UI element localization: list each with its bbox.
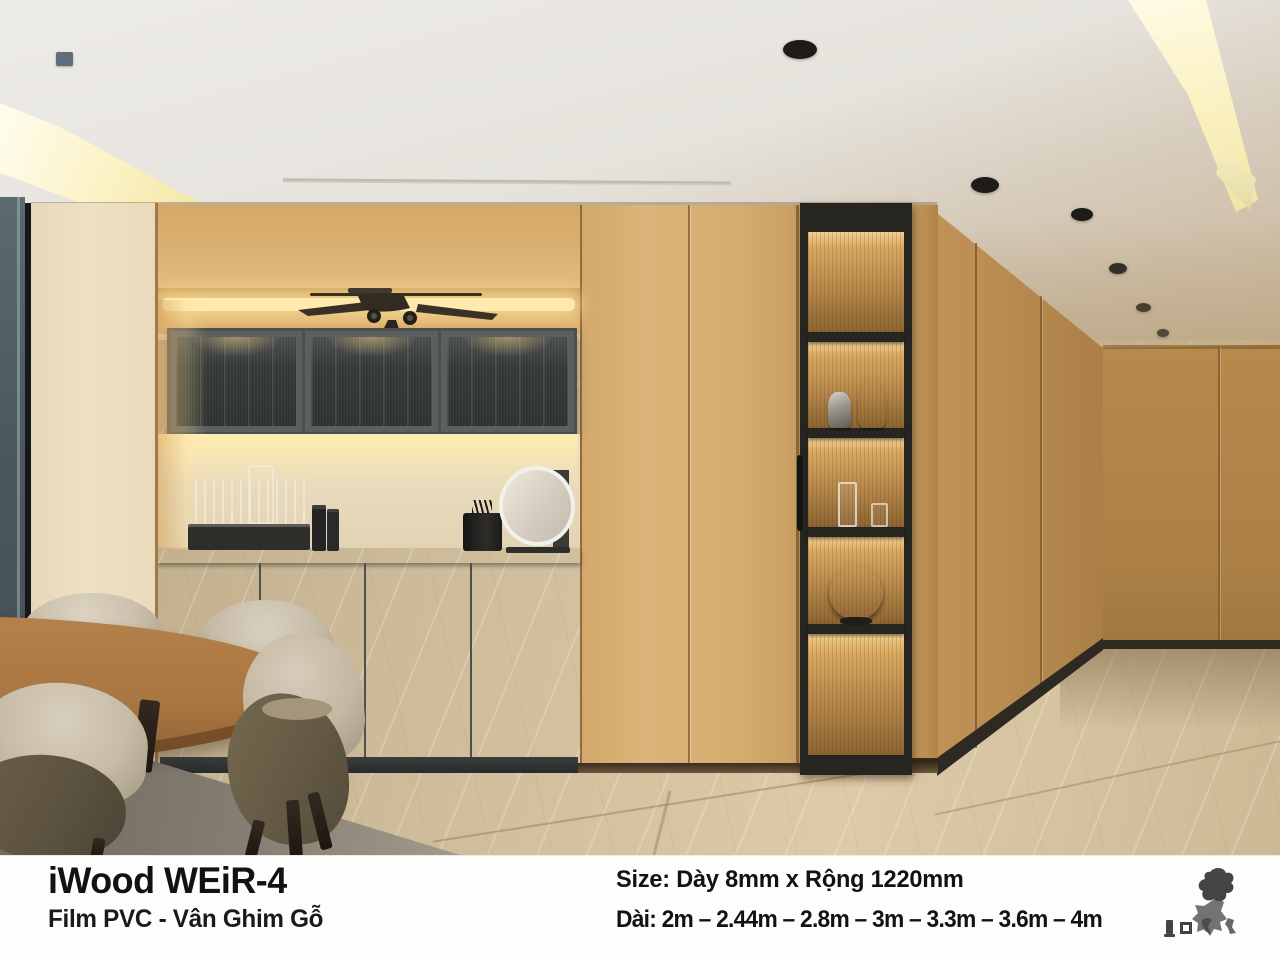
- upper-cabinet-door-3: [441, 331, 574, 432]
- tall-glass: [838, 482, 857, 527]
- niche-left-edge: [155, 203, 158, 855]
- black-bottle-2: [327, 509, 339, 551]
- tall-wood-doors: [580, 205, 800, 767]
- length-spec-line: Dài: 2m – 2.44m – 2.8m – 3m – 3.3m – 3.6…: [616, 906, 1102, 934]
- brand-stamp-logo: [1158, 864, 1253, 948]
- ceiling-vent: [56, 52, 73, 66]
- receding-wall-seam-1: [975, 243, 977, 748]
- far-wall-panels: [1103, 345, 1280, 648]
- shelf-board-3: [808, 527, 904, 537]
- downlight-1: [783, 40, 817, 59]
- shelf-board-1: [808, 332, 904, 342]
- far-wall-baseboard: [1103, 640, 1280, 649]
- short-glass: [871, 503, 888, 527]
- glass-decanter: [248, 465, 274, 524]
- far-wall-seam: [1218, 346, 1220, 646]
- corner-wood-strip: [912, 205, 938, 767]
- shelf-board-4: [808, 624, 904, 634]
- globe-stand: [840, 617, 872, 625]
- upper-cabinet-door-2: [305, 331, 438, 432]
- base-cabinet-seam-3: [470, 563, 472, 763]
- shelf-cell-5: [808, 634, 904, 755]
- black-candle: [463, 513, 502, 551]
- product-subtitle: Film PVC - Vân Ghim Gỗ: [48, 905, 323, 934]
- chair-front-right-seat: [262, 698, 332, 720]
- silver-figurine-1: [828, 392, 851, 428]
- size-spec-line: Size: Dày 8mm x Rộng 1220mm: [616, 866, 964, 894]
- model-airplane: [288, 280, 506, 334]
- base-cabinet-plinth: [160, 757, 578, 773]
- shelf-cell-2: [808, 342, 904, 428]
- downlight-2: [971, 177, 999, 193]
- door-seam-center: [688, 205, 690, 767]
- product-title: iWood WEiR-4: [48, 860, 287, 902]
- caption-bar: iWood WEiR-4 Film PVC - Vân Ghim Gỗ Size…: [0, 855, 1280, 955]
- product-showcase-card: iWood WEiR-4 Film PVC - Vân Ghim Gỗ Size…: [0, 0, 1280, 955]
- door-edge-left: [580, 205, 582, 767]
- niche-header-wood: [157, 205, 580, 290]
- base-cabinet-seam-2: [364, 563, 366, 763]
- receding-wall-seam-2: [1040, 296, 1042, 696]
- shelf-door-handle: [797, 455, 803, 531]
- shelf-cell-1: [808, 232, 904, 332]
- shelf-board-2: [808, 428, 904, 438]
- glass-tray: [188, 524, 310, 550]
- silver-figurine-2: [858, 380, 886, 428]
- countertop: [156, 548, 581, 563]
- globe: [829, 566, 883, 620]
- interior-render-photo: [0, 0, 1280, 855]
- candle-sprigs: [472, 500, 492, 514]
- black-bottle-1: [312, 505, 326, 551]
